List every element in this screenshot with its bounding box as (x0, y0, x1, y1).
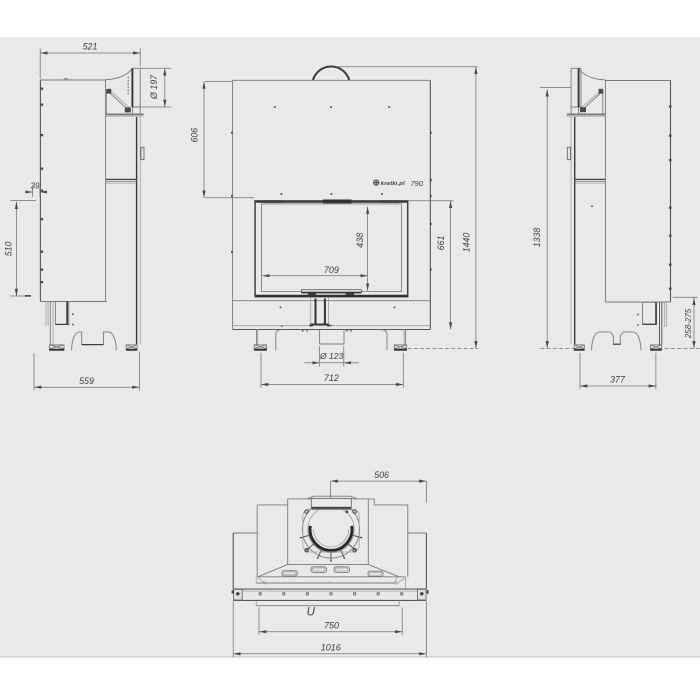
svg-text:1440: 1440 (462, 233, 472, 253)
svg-text:709: 709 (324, 265, 339, 275)
svg-text:661: 661 (436, 236, 446, 251)
svg-text:712: 712 (324, 373, 339, 383)
svg-text:559: 559 (79, 376, 94, 386)
svg-text:510: 510 (4, 241, 14, 256)
svg-text:kratki.pl: kratki.pl (381, 181, 405, 187)
svg-text:U: U (307, 607, 316, 619)
svg-text:750: 750 (324, 620, 339, 630)
svg-text:506: 506 (374, 470, 389, 480)
svg-text:377: 377 (610, 374, 626, 384)
svg-text:438: 438 (355, 233, 365, 248)
svg-text:1338: 1338 (532, 228, 542, 248)
svg-text:Ø 197: Ø 197 (149, 74, 159, 100)
svg-text:258-275: 258-275 (684, 308, 693, 339)
svg-text:790: 790 (411, 179, 424, 188)
svg-text:Ø 123: Ø 123 (319, 351, 343, 361)
svg-text:521: 521 (83, 41, 98, 51)
svg-text:606: 606 (190, 128, 200, 143)
svg-text:1016: 1016 (321, 642, 341, 652)
svg-text:39: 39 (31, 182, 40, 191)
